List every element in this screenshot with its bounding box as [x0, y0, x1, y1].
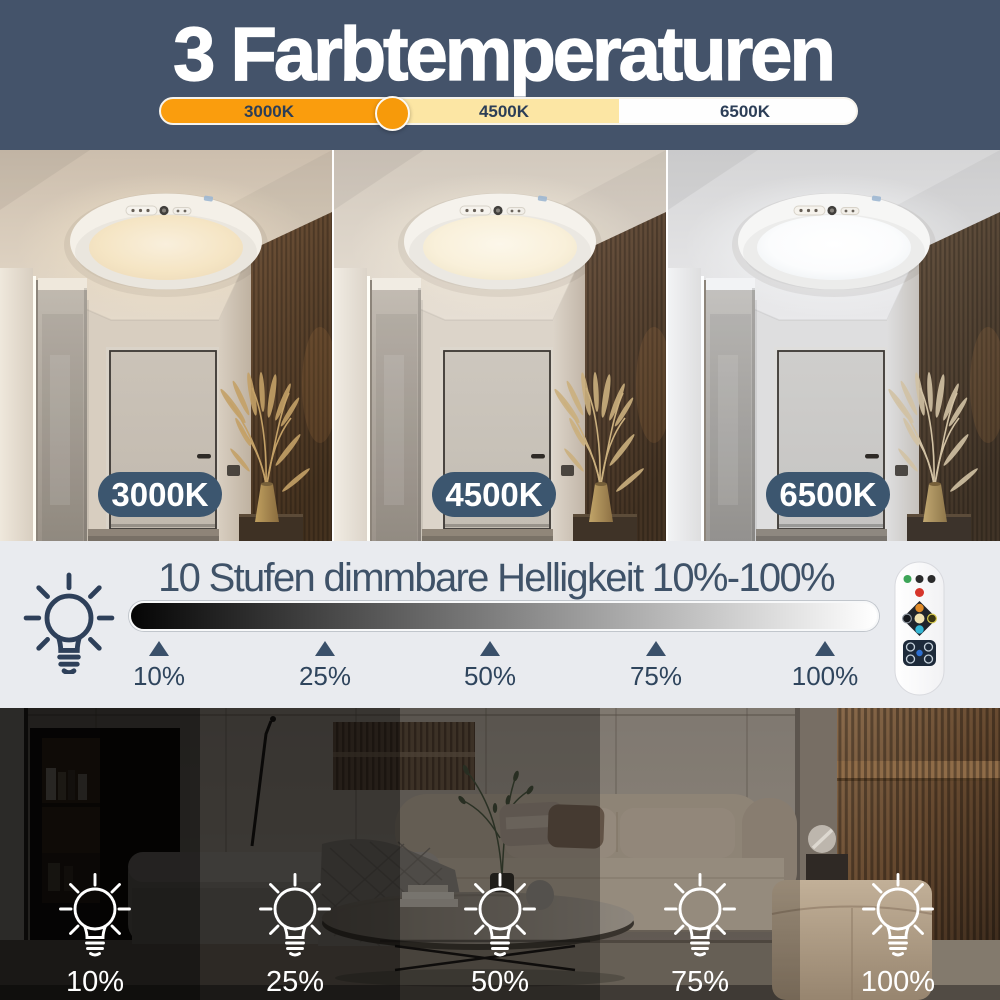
- svg-text:75%: 75%: [671, 966, 729, 998]
- svg-text:100%: 100%: [861, 966, 935, 998]
- svg-text:3000K: 3000K: [111, 476, 208, 513]
- svg-text:4500K: 4500K: [445, 476, 542, 513]
- svg-text:10%: 10%: [66, 966, 124, 998]
- svg-text:6500K: 6500K: [779, 476, 876, 513]
- svg-text:50%: 50%: [471, 966, 529, 998]
- svg-text:25%: 25%: [266, 966, 324, 998]
